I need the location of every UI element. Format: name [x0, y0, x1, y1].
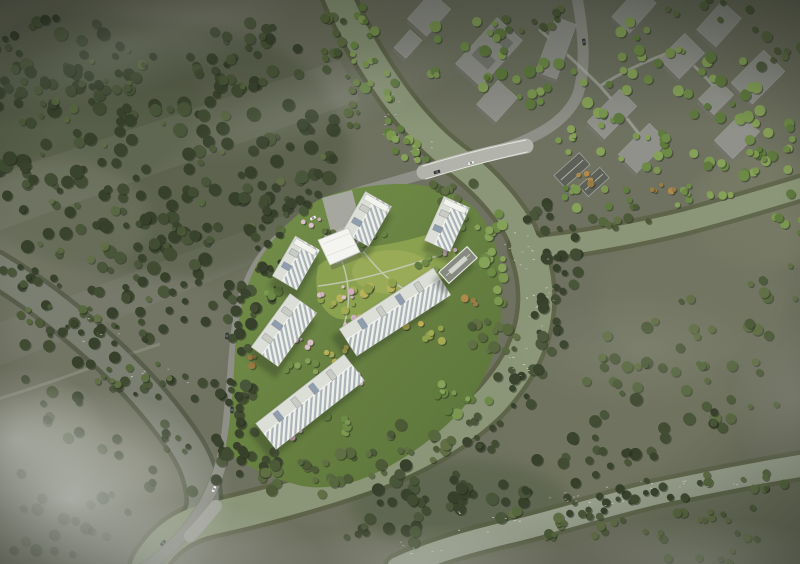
scene-canvas	[0, 0, 800, 564]
aerial-rendering	[0, 0, 800, 564]
vignette	[0, 0, 800, 564]
